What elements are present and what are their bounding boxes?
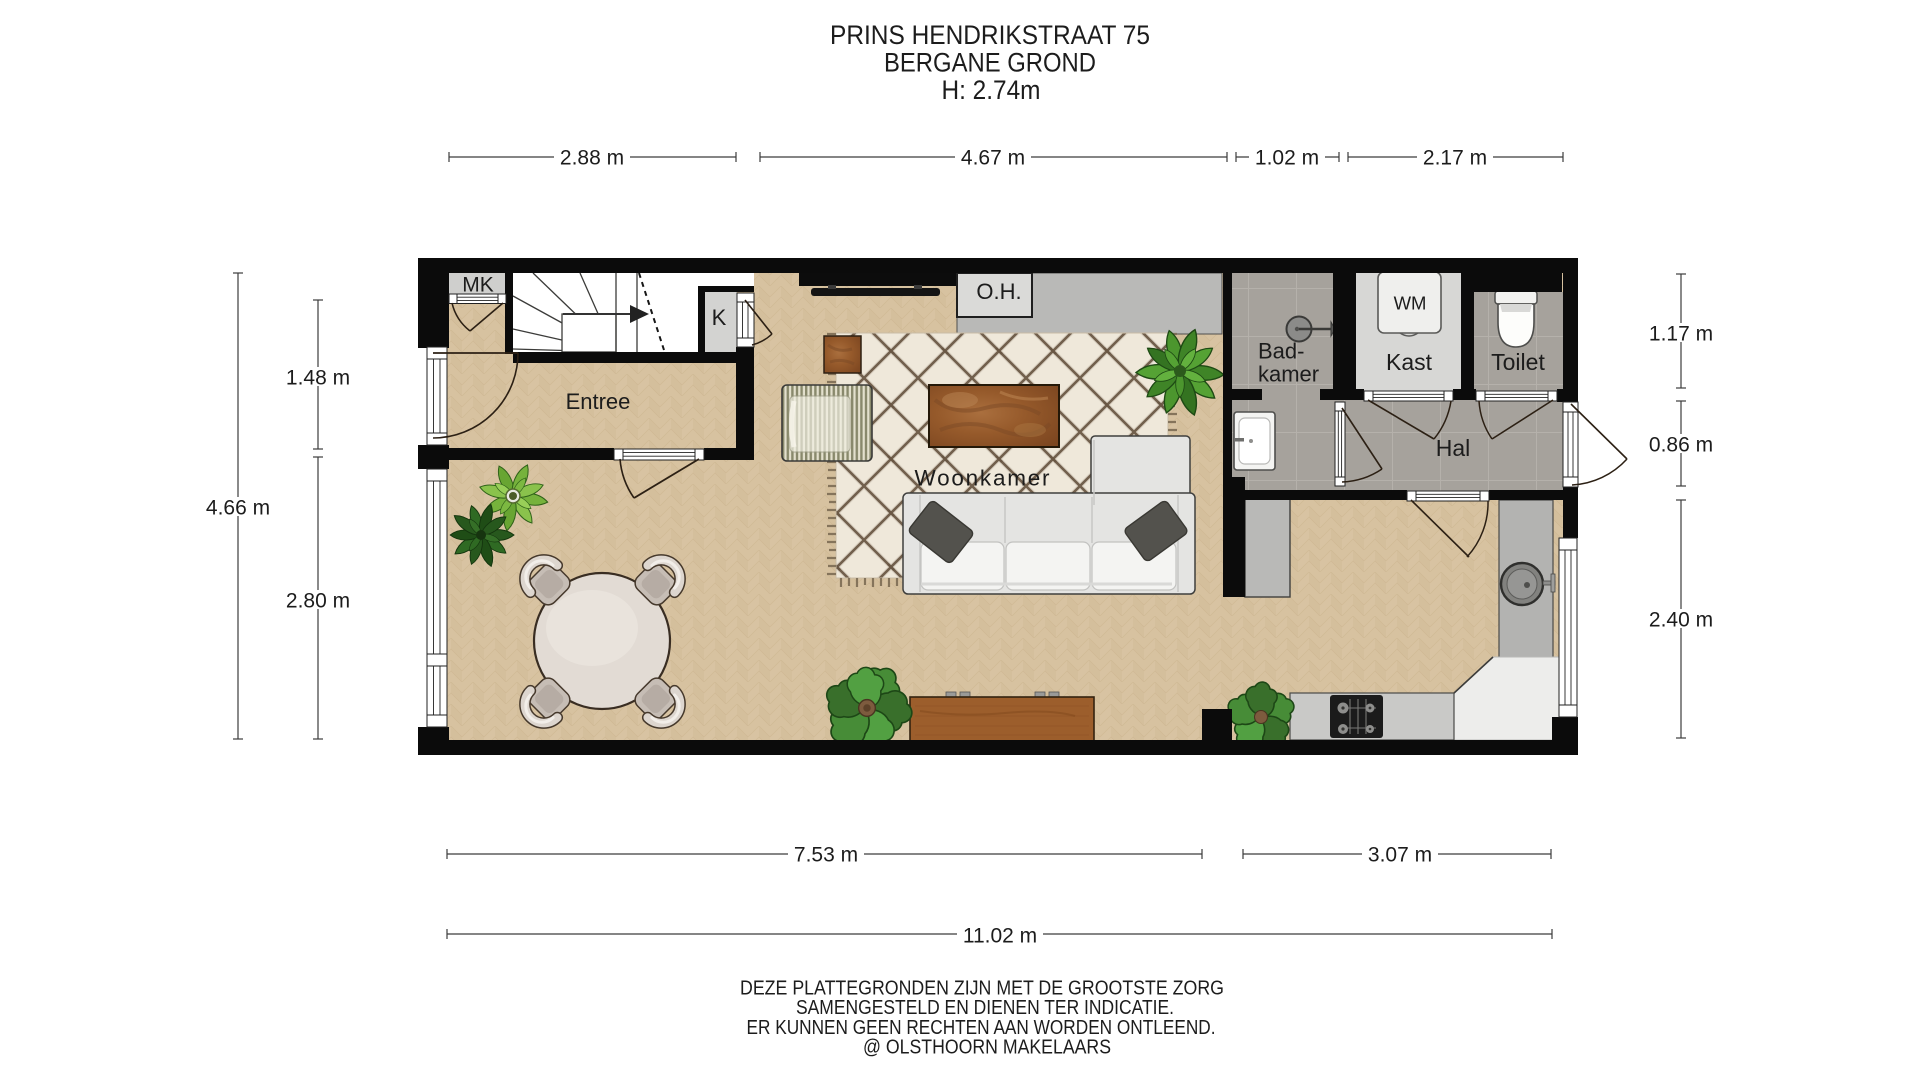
svg-text:2.17 m: 2.17 m	[1423, 147, 1487, 170]
svg-text:Kast: Kast	[1386, 349, 1433, 375]
svg-text:4.67 m: 4.67 m	[961, 147, 1025, 170]
svg-text:kamer: kamer	[1258, 362, 1319, 387]
svg-text:SAMENGESTELD EN DIENEN TER IND: SAMENGESTELD EN DIENEN TER INDICATIE.	[796, 997, 1174, 1019]
svg-text:2.40 m: 2.40 m	[1649, 609, 1713, 632]
svg-text:K: K	[712, 305, 727, 330]
svg-text:Woonkamer: Woonkamer	[915, 466, 1051, 491]
svg-text:H: 2.74m: H: 2.74m	[942, 75, 1041, 105]
svg-text:1.48 m: 1.48 m	[286, 367, 350, 390]
svg-text:3.07 m: 3.07 m	[1368, 844, 1432, 867]
svg-text:2.88 m: 2.88 m	[560, 147, 624, 170]
svg-text:Bad-: Bad-	[1258, 339, 1304, 364]
svg-text:BERGANE GROND: BERGANE GROND	[884, 48, 1096, 78]
svg-text:WM: WM	[1394, 293, 1427, 314]
svg-text:ER KUNNEN GEEN RECHTEN AAN WOR: ER KUNNEN GEEN RECHTEN AAN WORDEN ONTLEE…	[747, 1017, 1216, 1039]
svg-text:@ OLSTHOORN MAKELAARS: @ OLSTHOORN MAKELAARS	[863, 1037, 1111, 1059]
svg-text:Entree: Entree	[566, 389, 631, 414]
svg-text:MK: MK	[462, 274, 494, 297]
svg-text:4.66 m: 4.66 m	[206, 497, 270, 520]
svg-text:2.80 m: 2.80 m	[286, 590, 350, 613]
svg-text:1.02 m: 1.02 m	[1255, 147, 1319, 170]
svg-text:Toilet: Toilet	[1491, 349, 1545, 375]
svg-text:7.53 m: 7.53 m	[794, 844, 858, 867]
svg-text:0.86 m: 0.86 m	[1649, 434, 1713, 457]
svg-text:O.H.: O.H.	[976, 279, 1021, 304]
svg-text:1.17 m: 1.17 m	[1649, 323, 1713, 346]
svg-text:PRINS HENDRIKSTRAAT 75: PRINS HENDRIKSTRAAT 75	[830, 20, 1150, 50]
svg-text:11.02 m: 11.02 m	[963, 925, 1037, 948]
svg-text:Hal: Hal	[1436, 435, 1471, 461]
